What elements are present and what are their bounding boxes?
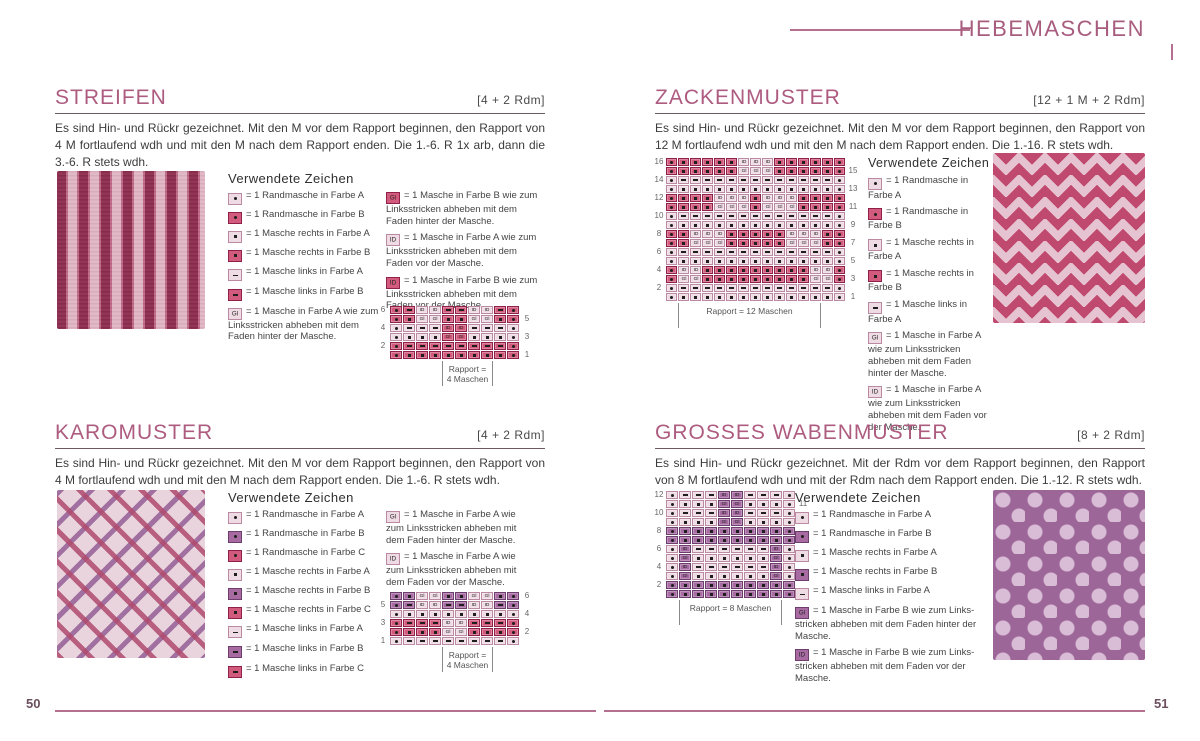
knit-stitch-icon <box>775 530 778 533</box>
slip-wyif-icon: ID <box>485 603 490 608</box>
row-number: 3 <box>376 619 390 627</box>
knit-stitch-icon <box>499 595 502 598</box>
purl-stitch-icon <box>748 494 753 496</box>
knit-stitch-icon <box>742 260 745 263</box>
chart-cell-Bk <box>774 275 785 283</box>
slip-wyib-icon: Gl <box>813 277 818 282</box>
chart-row: 2 <box>652 284 860 292</box>
chart-cell-Bd <box>507 315 519 323</box>
chart-cell-Ad <box>666 176 677 184</box>
rapport-label: Rapport = 8 Maschen <box>680 603 781 613</box>
knit-stitch-icon <box>766 260 769 263</box>
chart-cell-Ap <box>810 212 821 220</box>
knit-stitch-icon <box>826 224 829 227</box>
chart-cell-Bk <box>731 581 743 589</box>
stitch-chart-zackenmuster: 16IDIDIDGlGlGl15141312IDIDIDIDIDIDGlGlGl… <box>652 158 860 328</box>
chart-cell-Ap <box>679 509 691 517</box>
legend-item: Gl= 1 Masche in Farbe B wie zum Linksstr… <box>386 190 545 228</box>
knit-stitch-icon <box>718 224 721 227</box>
knit-stitch-icon <box>473 336 476 339</box>
edge-stitch-dot-icon <box>395 327 398 330</box>
purl-stitch-icon <box>696 494 701 496</box>
slip-wyib-icon: Gl <box>765 169 770 174</box>
swatch-photo-karomuster <box>57 490 205 658</box>
knit-stitch-icon <box>682 188 685 191</box>
edge-stitch-dot-icon <box>512 613 515 616</box>
chart-cell-Bk <box>750 239 761 247</box>
chart-cell-Ak <box>692 554 704 562</box>
chart-cell-Ap <box>738 248 749 256</box>
edge-stitch-dot-icon <box>788 593 791 596</box>
chart-cell-Bk <box>744 527 756 535</box>
knit-stitch-icon <box>754 260 757 263</box>
legend-symbol-Ad <box>795 512 809 524</box>
row-number: 4 <box>652 266 666 274</box>
chart-cell-Ak <box>762 293 773 301</box>
chart-row: 6IDIDIDID <box>376 306 534 314</box>
chart-cell-Bp <box>494 342 506 350</box>
chart-row: GlGlGlGl5 <box>376 315 534 323</box>
purl-stitch-icon <box>498 345 503 347</box>
chart-cell-Ak <box>822 257 833 265</box>
chart-cell-Agl: Gl <box>798 239 809 247</box>
chart-cell-Bk <box>494 315 506 323</box>
chart-cell-Ak <box>416 610 428 618</box>
chart-cell-Agl: Gl <box>738 167 749 175</box>
edge-stitch-dot-icon <box>671 539 674 542</box>
purl-stitch-icon <box>233 671 238 673</box>
legend-item-text: = 1 Masche links in Farbe A <box>813 585 930 596</box>
chart-cell-Bid: ID <box>679 545 691 553</box>
chart-cell-Bk <box>690 203 701 211</box>
chart-cell-Ak <box>750 185 761 193</box>
chart-cell-Ak <box>494 333 506 341</box>
knit-stitch-icon <box>694 188 697 191</box>
chart-cell-Ak <box>702 185 713 193</box>
purl-stitch-icon <box>825 215 830 217</box>
knit-stitch-icon <box>730 233 733 236</box>
chart-cell-Bid: ID <box>455 324 467 332</box>
chart-cell-Ap <box>494 324 506 332</box>
legend-symbol-Ap <box>228 626 242 638</box>
chart-cell-Ap <box>750 284 761 292</box>
knit-stitch-icon <box>723 539 726 542</box>
knit-stitch-icon <box>826 242 829 245</box>
legend-item-text: = 1 Randmasche in Farbe C <box>246 547 365 558</box>
purl-stitch-icon <box>681 251 686 253</box>
chart-cell-Ap <box>705 545 717 553</box>
chart-cell-Ad <box>507 610 519 618</box>
knit-stitch-icon <box>684 521 687 524</box>
chart-cell-Agl: Gl <box>429 315 441 323</box>
chart-cell-Ap <box>757 509 769 517</box>
legend-item: = 1 Randmasche in Farbe C <box>228 547 380 562</box>
slip-wyif-icon: ID <box>813 232 818 237</box>
chart-cell-Bp <box>455 306 467 314</box>
chart-cell-Bd <box>783 527 795 535</box>
chart-cell-Ak <box>679 518 691 526</box>
knit-stitch-icon <box>790 296 793 299</box>
chart-cell-Ap <box>726 176 737 184</box>
legend-item: = 1 Randmasche in Farbe B <box>795 528 990 543</box>
chart-cell-Ap <box>744 545 756 553</box>
slip-wyib-icon: Gl <box>472 594 477 599</box>
edge-stitch-dot-icon <box>395 622 398 625</box>
purl-stitch-icon <box>741 287 746 289</box>
chart-cell-Ck <box>429 628 441 636</box>
edge-stitch-dot-icon <box>838 224 841 227</box>
knit-stitch-icon <box>447 595 450 598</box>
chart-cell-Ak <box>429 333 441 341</box>
knit-stitch-icon <box>730 224 733 227</box>
purl-stitch-icon <box>233 294 238 296</box>
legend-symbol-Cp <box>228 666 242 678</box>
legend-item-text: = 1 Masche rechts in Farbe B <box>868 268 974 294</box>
legend-symbol-Ck <box>228 607 242 619</box>
knit-stitch-icon <box>723 593 726 596</box>
edge-stitch-dot-icon <box>788 575 791 578</box>
knit-stitch-icon <box>473 354 476 357</box>
legend-symbol-Ap <box>795 588 809 600</box>
purl-stitch-icon <box>485 345 490 347</box>
chart-cell-Aid: ID <box>762 194 773 202</box>
purl-stitch-icon <box>420 622 425 624</box>
purl-stitch-icon <box>741 215 746 217</box>
knit-stitch-icon <box>710 503 713 506</box>
knit-stitch-icon <box>486 613 489 616</box>
chart-cell-Bid: ID <box>679 563 691 571</box>
slip-wyif-icon: ID <box>717 196 722 201</box>
chart-cell-Ap <box>810 248 821 256</box>
chart-cell-Ad <box>783 545 795 553</box>
chart-cell-Aid: ID <box>738 194 749 202</box>
chart-cell-Ad <box>666 563 678 571</box>
edge-stitch-dot-icon <box>838 215 841 218</box>
purl-stitch-icon <box>735 548 740 550</box>
slip-wyib-icon: Gl <box>872 335 878 341</box>
chart-cell-Bgl: Gl <box>442 333 454 341</box>
chart-cell-Aid: ID <box>738 158 749 166</box>
chart-cell-Aid: ID <box>810 230 821 238</box>
chart-cell-Ap <box>731 563 743 571</box>
knit-stitch-icon <box>694 224 697 227</box>
knit-stitch-icon <box>697 530 700 533</box>
chart-cell-Ak <box>750 257 761 265</box>
chart-cell-Bk <box>762 230 773 238</box>
chart-cell-Bd <box>666 239 677 247</box>
slip-wyif-icon: ID <box>446 326 451 331</box>
legend-symbol-Ap <box>228 269 242 281</box>
knit-stitch-icon <box>499 613 502 616</box>
chart-cell-Bk <box>702 275 713 283</box>
knit-stitch-icon <box>434 354 437 357</box>
legend-symbol-Ad <box>868 178 882 190</box>
chart-cell-Ak <box>770 500 782 508</box>
legend-item-text: = 1 Masche links in Farbe B <box>246 643 363 654</box>
chart-cell-Bd <box>390 592 402 600</box>
knit-stitch-icon <box>447 613 450 616</box>
chart-cell-Ak <box>718 554 730 562</box>
chart-cell-Bp <box>455 601 467 609</box>
chart-cell-Ak <box>810 293 821 301</box>
knit-stitch-icon <box>736 557 739 560</box>
knit-stitch-icon <box>682 260 685 263</box>
purl-stitch-icon <box>485 327 490 329</box>
chart-cell-Ak <box>416 333 428 341</box>
slip-wyib-icon: Gl <box>420 317 425 322</box>
edge-stitch-dot-icon <box>788 530 791 533</box>
legend-item-text: = 1 Masche rechts in Farbe B <box>246 247 370 258</box>
knit-stitch-icon <box>775 521 778 524</box>
purl-stitch-icon <box>722 548 727 550</box>
rapport-label: Rapport = <box>443 364 492 374</box>
edge-stitch-dot-icon <box>838 188 841 191</box>
chart-cell-Bk <box>798 158 809 166</box>
slip-wyif-icon: ID <box>735 511 740 516</box>
purl-stitch-icon <box>705 251 710 253</box>
chart-cell-Bp <box>403 601 415 609</box>
chart-cell-Bk <box>403 592 415 600</box>
chart-cell-Bk <box>738 239 749 247</box>
chart-cell-Bp <box>481 342 493 350</box>
chart-cell-Bk <box>718 527 730 535</box>
purl-stitch-icon <box>748 566 753 568</box>
chart-cell-Bid: ID <box>731 509 743 517</box>
knit-stitch-icon <box>697 503 700 506</box>
legend-item-text: = 1 Randmasche in Farbe A <box>868 175 968 201</box>
purl-stitch-icon <box>683 512 688 514</box>
purl-stitch-icon <box>407 327 412 329</box>
slip-wyib-icon: Gl <box>774 574 779 579</box>
legend-title: Verwendete Zeichen <box>228 171 354 186</box>
chart-cell-Bp <box>494 306 506 314</box>
row-number: 13 <box>846 185 860 193</box>
legend-item: Gl= 1 Masche in Farbe A wie zum Linksstr… <box>386 509 536 547</box>
slip-wyif-icon: ID <box>420 603 425 608</box>
knit-stitch-icon <box>697 557 700 560</box>
edge-stitch-dot-icon <box>670 287 673 290</box>
legend-item-text: = 1 Masche in Farbe A wie zum Linksstric… <box>386 551 516 588</box>
chart-cell-Ap <box>718 563 730 571</box>
row-number: 8 <box>652 527 666 535</box>
chart-cell-Ap <box>822 212 833 220</box>
knit-stitch-icon <box>706 278 709 281</box>
row-number: 11 <box>846 203 860 211</box>
slip-wyib-icon: Gl <box>722 502 727 507</box>
knit-stitch-icon <box>742 224 745 227</box>
chart-cell-Bk <box>705 581 717 589</box>
chart-cell-Ad <box>783 572 795 580</box>
legend-item: = 1 Randmasche in Farbe B <box>228 528 380 543</box>
legend-item-text: = 1 Masche in Farbe B wie zum Links­stri… <box>795 605 976 642</box>
chart-cell-Cd <box>390 619 402 627</box>
chart-row: 9 <box>652 221 860 229</box>
chart-row: 4IDID <box>376 324 534 332</box>
chart-row: GlGlGlGlGlGl7 <box>652 239 860 247</box>
knit-stitch-icon <box>826 188 829 191</box>
purl-stitch-icon <box>705 287 710 289</box>
edge-stitch-dot-icon <box>234 197 237 200</box>
legend-symbol-Ak <box>868 239 882 251</box>
chart-cell-Ad <box>834 221 845 229</box>
knit-stitch-icon <box>684 539 687 542</box>
chart-cell-Ad <box>834 185 845 193</box>
chart-cell-Bk <box>810 203 821 211</box>
slip-wyib-icon: Gl <box>459 630 464 635</box>
knit-stitch-icon <box>790 170 793 173</box>
legend-symbol-Cd <box>228 550 242 562</box>
legend-title: Verwendete Zeichen <box>868 156 989 170</box>
legend-symbol-Bid: ID <box>386 277 400 289</box>
row-number: 10 <box>652 212 666 220</box>
chart-cell-Ap <box>705 509 717 517</box>
chart-cell-Bd <box>390 315 402 323</box>
knit-stitch-icon <box>814 188 817 191</box>
chart-row: 3IDID <box>376 619 534 627</box>
chart-cell-Bk <box>718 590 730 598</box>
title-underline <box>655 448 1145 449</box>
chart-row: 1 <box>376 637 534 645</box>
knit-stitch-icon <box>766 242 769 245</box>
chart-cell-Aid: ID <box>810 266 821 274</box>
chart-cell-Bd <box>834 230 845 238</box>
purl-stitch-icon <box>753 251 758 253</box>
chart-cell-Ak <box>762 221 773 229</box>
chart-cell-Bd <box>666 203 677 211</box>
chart-cell-Bp <box>442 601 454 609</box>
knit-stitch-icon <box>718 278 721 281</box>
row-number: 4 <box>376 324 390 332</box>
edge-stitch-dot-icon <box>788 503 791 506</box>
chart-cell-Bk <box>731 536 743 544</box>
slip-wyif-icon: ID <box>420 308 425 313</box>
chart-cell-Ap <box>690 176 701 184</box>
chart-cell-Ak <box>468 333 480 341</box>
chart-row: 5 <box>652 257 860 265</box>
chart-cell-Ck <box>494 628 506 636</box>
slip-wyib-icon: Gl <box>390 514 396 520</box>
chart-cell-Bk <box>774 230 785 238</box>
chart-cell-Ap <box>403 324 415 332</box>
knit-stitch-icon <box>826 197 829 200</box>
knit-stitch-icon <box>460 595 463 598</box>
knit-stitch-icon <box>749 521 752 524</box>
chart-cell-Bk <box>726 158 737 166</box>
knit-stitch-icon <box>723 557 726 560</box>
knit-stitch-icon <box>754 296 757 299</box>
row-number: 1 <box>520 351 534 359</box>
chart-cell-Ak <box>714 185 725 193</box>
title-underline <box>655 113 1145 114</box>
edge-stitch-dot-icon <box>788 521 791 524</box>
chart-cell-Ap <box>403 637 415 645</box>
chart-cell-Bk <box>714 158 725 166</box>
chart-cell-Aid: ID <box>822 266 833 274</box>
knit-stitch-icon <box>697 539 700 542</box>
knit-stitch-icon <box>473 613 476 616</box>
chart-cell-Bd <box>666 266 677 274</box>
edge-stitch-dot-icon <box>838 206 841 209</box>
slip-wyif-icon: ID <box>774 547 779 552</box>
legend-symbol-Bid: ID <box>795 649 809 661</box>
knit-stitch-icon <box>694 170 697 173</box>
knit-stitch-icon <box>754 224 757 227</box>
book-spread: HEBEMASCHEN STREIFEN [4 + 2 Rdm] Es sind… <box>0 0 1200 741</box>
chart-cell-Agl: Gl <box>690 275 701 283</box>
knit-stitch-icon <box>778 224 781 227</box>
slip-wyif-icon: ID <box>459 621 464 626</box>
knit-stitch-icon <box>486 354 489 357</box>
chart-cell-Ap <box>744 509 756 517</box>
chart-cell-Ap <box>757 563 769 571</box>
chart-cell-Ad <box>666 572 678 580</box>
chart-row: 6IDID <box>652 545 810 553</box>
edge-stitch-dot-icon <box>395 613 398 616</box>
stitch-chart-wabenmuster: 12IDIDGlGl1110IDIDGlGl9876IDIDGlGl54IDID… <box>652 491 810 625</box>
chart-cell-Ap <box>714 284 725 292</box>
chart-cell-Ap <box>762 176 773 184</box>
rapport-bracket: Rapport =4 Maschen <box>442 647 493 672</box>
chart-cell-Agl: Gl <box>678 275 689 283</box>
row-number: 6 <box>520 592 534 600</box>
knit-stitch-icon <box>234 254 237 257</box>
chart-cell-Bd <box>666 590 678 598</box>
knit-stitch-icon <box>802 161 805 164</box>
knit-stitch-icon <box>778 278 781 281</box>
row-number: 2 <box>652 581 666 589</box>
legend-item: = 1 Randmasche in Farbe A <box>228 509 380 524</box>
knit-stitch-icon <box>775 584 778 587</box>
knit-stitch-icon <box>826 161 829 164</box>
knit-stitch-icon <box>826 233 829 236</box>
chart-cell-Ad <box>507 333 519 341</box>
legend-symbol-Ap <box>868 302 882 314</box>
chart-cell-Ad <box>666 248 677 256</box>
legend-item: ID= 1 Masche in Farbe A wie zum Linksstr… <box>386 551 536 589</box>
knit-stitch-icon <box>499 631 502 634</box>
edge-stitch-dot-icon <box>234 216 237 219</box>
purl-stitch-icon <box>681 287 686 289</box>
chart-cell-Bk <box>750 203 761 211</box>
legend-symbol-Bk <box>228 588 242 600</box>
chart-cell-Ak <box>774 293 785 301</box>
chart-cell-Ap <box>429 324 441 332</box>
purl-stitch-icon <box>233 632 238 634</box>
purl-stitch-icon <box>801 215 806 217</box>
chart-cell-Aid: ID <box>468 601 480 609</box>
chart-row: 6 <box>652 248 860 256</box>
legend-item-text: = 1 Randmasche in Farbe A <box>813 509 931 520</box>
chart-cell-Bd <box>666 230 677 238</box>
purl-stitch-icon <box>681 215 686 217</box>
chart-cell-Ak <box>731 554 743 562</box>
slip-wyib-icon: Gl <box>753 169 758 174</box>
legend-symbol-Aid: ID <box>386 553 400 565</box>
slip-wyib-icon: Gl <box>729 205 734 210</box>
knit-stitch-icon <box>749 530 752 533</box>
slip-wyib-icon: Gl <box>683 556 688 561</box>
purl-stitch-icon <box>446 640 451 642</box>
chart-row: 10 <box>652 212 860 220</box>
chart-cell-Ak <box>468 610 480 618</box>
purl-stitch-icon <box>753 215 758 217</box>
knit-stitch-icon <box>778 161 781 164</box>
knit-stitch-icon <box>742 242 745 245</box>
legend-item: = 1 Randmasche in Farbe A <box>228 190 380 205</box>
chart-cell-Bk <box>757 536 769 544</box>
section-intro: Es sind Hin- und Rückr gezeichnet. Mit d… <box>655 455 1145 489</box>
purl-stitch-icon <box>748 512 753 514</box>
